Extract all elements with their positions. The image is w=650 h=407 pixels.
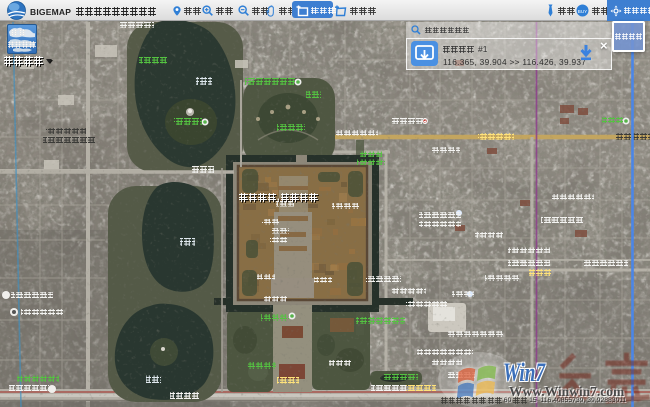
svg-text:BUY: BUY: [578, 9, 587, 14]
